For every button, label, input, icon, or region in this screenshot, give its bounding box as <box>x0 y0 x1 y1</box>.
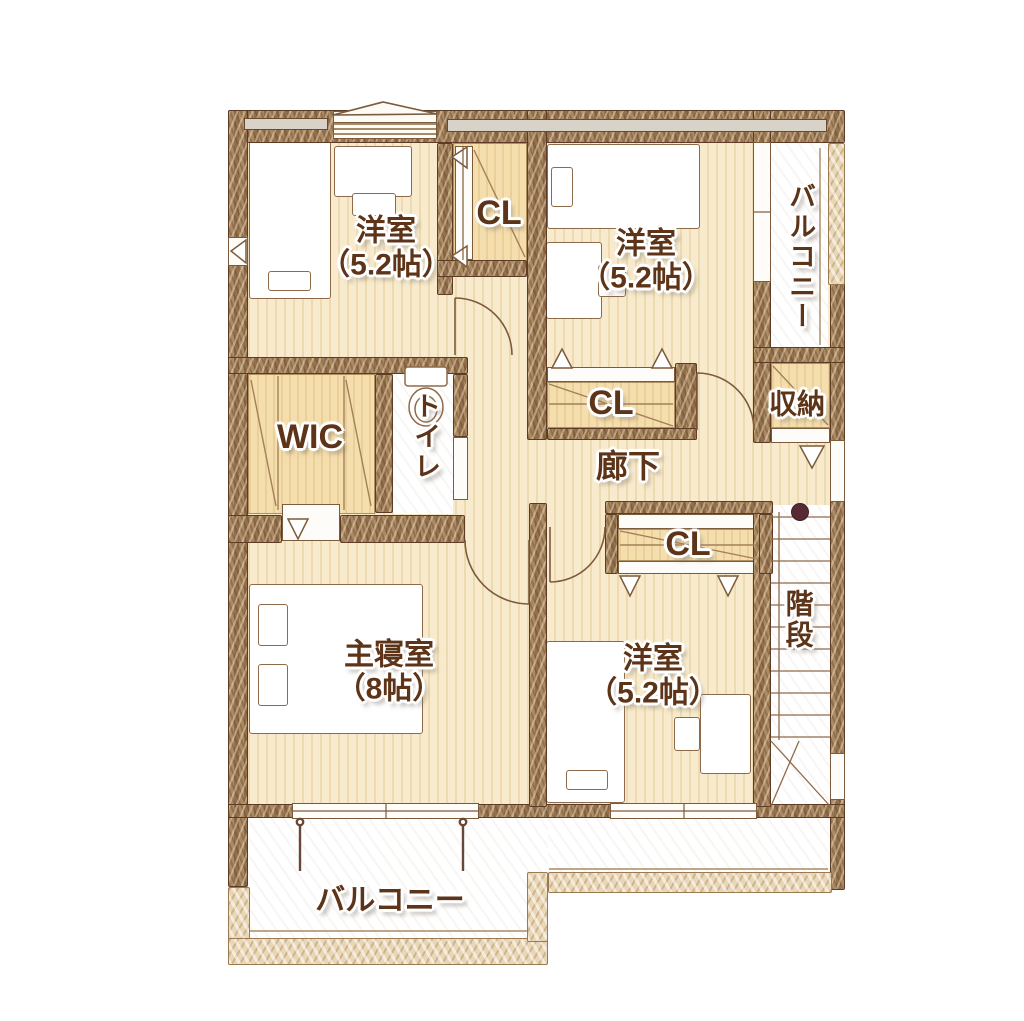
window-top-right <box>447 119 827 132</box>
balcony-side-rail <box>828 143 845 285</box>
storage-shelf <box>771 428 830 443</box>
wall-closet-bottom-left <box>605 514 618 574</box>
balcony-bottom-floor-right <box>548 818 830 872</box>
louver-stripes <box>333 122 437 139</box>
wic-door <box>282 504 340 541</box>
room-label-bedroom-top-left: 洋室 （5.2帖） <box>320 214 452 281</box>
room-size: （5.2帖） <box>320 248 452 282</box>
room-size: （5.2帖） <box>587 676 719 710</box>
balcony-bottom-rail-right <box>548 872 832 893</box>
wall-wic-toilet <box>375 374 393 513</box>
room-label-master-bedroom: 主寝室 （8帖） <box>336 638 443 705</box>
room-name: 洋室 <box>320 214 452 248</box>
wall-balcony-side-bottom <box>753 347 845 363</box>
pillow <box>268 271 311 291</box>
closet-top-door <box>455 146 473 260</box>
pillow <box>566 770 608 790</box>
room-label-bedroom-top-right: 洋室 （5.2帖） <box>580 227 712 294</box>
pillow <box>551 167 573 207</box>
label-hallway: 廊下 <box>596 449 660 485</box>
window-landing <box>830 440 845 502</box>
window-master-bedroom <box>292 803 479 819</box>
balcony-bottom-rail-step <box>527 872 548 942</box>
window-left-wall <box>228 237 248 266</box>
desk <box>334 146 412 197</box>
room-size: （5.2帖） <box>580 261 712 295</box>
toilet-door <box>453 437 468 500</box>
label-closet-bottom: CL <box>665 525 710 563</box>
label-closet-top: CL <box>476 194 521 232</box>
label-wic: WIC <box>277 418 343 456</box>
wall-mid-upper <box>228 357 468 374</box>
label-closet-middle: CL <box>588 384 633 422</box>
stairs-floor <box>771 505 830 807</box>
window-stairs <box>830 753 845 800</box>
label-balcony-bottom: バルコニー <box>315 884 464 918</box>
wall-closet-middle-bottom <box>547 428 697 440</box>
chair <box>352 193 396 216</box>
wall-mid-lower-center <box>340 515 465 543</box>
closet-middle-shelf <box>547 367 675 382</box>
wall-mid-lower-left <box>228 515 282 543</box>
chair <box>674 717 700 751</box>
wall-toilet-right <box>453 374 468 437</box>
label-balcony-side: バルコニー <box>785 182 815 332</box>
wall-left-exterior <box>228 110 248 887</box>
pillow <box>258 604 288 646</box>
floor-plan: 洋室 （5.2帖） CL 洋室 （5.2帖） バルコニー 収納 WIC トイレ … <box>0 0 1024 1021</box>
wall-closet-bottom-right <box>759 514 773 574</box>
room-size: （8帖） <box>336 672 443 706</box>
window-top-left <box>244 118 328 130</box>
window-bedroom-bottom-right <box>610 803 757 819</box>
label-storage: 収納 <box>769 388 825 419</box>
pillow <box>258 664 288 706</box>
wall-closet-bottom-top <box>605 501 773 514</box>
room-label-bedroom-bottom-right: 洋室 （5.2帖） <box>587 642 719 709</box>
room-name: 洋室 <box>580 227 712 261</box>
label-toilet: トイレ <box>410 392 440 482</box>
balcony-bottom-floor-left <box>232 818 548 938</box>
window-balcony-side <box>753 142 771 282</box>
wall-master-right <box>529 503 547 807</box>
room-name: 主寝室 <box>336 638 443 672</box>
room-name: 洋室 <box>587 642 719 676</box>
label-stairs: 階段 <box>782 589 813 651</box>
wall-center-vertical <box>527 110 547 440</box>
balcony-bottom-rail-bottom <box>228 938 548 965</box>
